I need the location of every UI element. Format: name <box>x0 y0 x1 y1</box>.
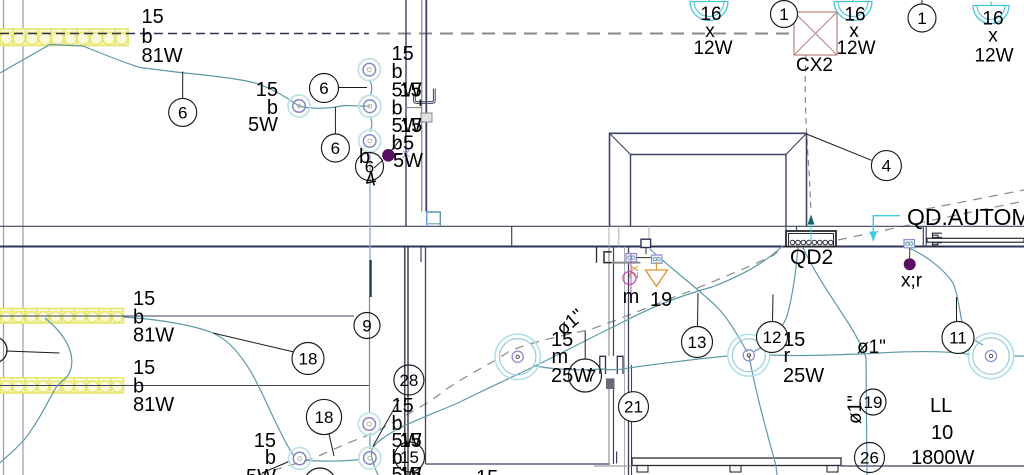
svg-text:15: 15 <box>400 430 422 452</box>
svg-text:1: 1 <box>779 5 788 24</box>
svg-text:6: 6 <box>319 79 328 98</box>
svg-text:r: r <box>784 345 791 367</box>
svg-text:QD.AUTOM: QD.AUTOM <box>907 204 1024 230</box>
svg-text:15: 15 <box>400 80 422 102</box>
svg-text:19: 19 <box>864 393 883 412</box>
svg-text:13: 13 <box>688 333 707 352</box>
svg-text:21: 21 <box>624 398 643 417</box>
svg-text:18: 18 <box>315 408 334 427</box>
svg-text:6: 6 <box>178 103 187 122</box>
svg-text:m: m <box>623 286 640 308</box>
svg-text:81W: 81W <box>133 325 174 347</box>
svg-text:25W: 25W <box>551 365 592 387</box>
svg-text:26: 26 <box>860 448 879 467</box>
svg-text:ø1": ø1" <box>845 395 866 424</box>
svg-text:x;r: x;r <box>901 271 923 292</box>
svg-text:4: 4 <box>882 157 891 176</box>
svg-text:6: 6 <box>331 139 340 158</box>
svg-text:28: 28 <box>399 371 418 390</box>
svg-text:15: 15 <box>142 6 164 28</box>
svg-text:5W: 5W <box>246 466 276 475</box>
svg-text:11: 11 <box>949 328 967 347</box>
svg-text:1: 1 <box>917 9 926 28</box>
svg-text:LL: LL <box>930 395 952 417</box>
svg-text:ø1": ø1" <box>857 337 886 358</box>
svg-text:25W: 25W <box>783 365 824 387</box>
svg-text:CX2: CX2 <box>796 55 833 76</box>
svg-text:10: 10 <box>931 422 953 444</box>
svg-text:81W: 81W <box>133 394 174 416</box>
svg-text:15: 15 <box>400 464 422 475</box>
svg-text:15: 15 <box>476 467 498 475</box>
svg-text:5W: 5W <box>393 150 423 172</box>
svg-text:12W: 12W <box>693 38 732 59</box>
svg-text:12W: 12W <box>974 46 1013 67</box>
svg-text:18: 18 <box>299 349 318 368</box>
svg-text:1800W: 1800W <box>911 447 974 469</box>
svg-text:b: b <box>359 146 370 168</box>
svg-text:12: 12 <box>763 328 782 347</box>
svg-text:81W: 81W <box>142 45 183 67</box>
svg-text:12W: 12W <box>836 38 875 59</box>
svg-text:5W: 5W <box>248 114 278 136</box>
svg-text:x: x <box>988 26 998 47</box>
svg-text:19: 19 <box>650 289 672 311</box>
svg-text:9: 9 <box>362 316 371 335</box>
svg-text:QD2: QD2 <box>790 246 833 269</box>
